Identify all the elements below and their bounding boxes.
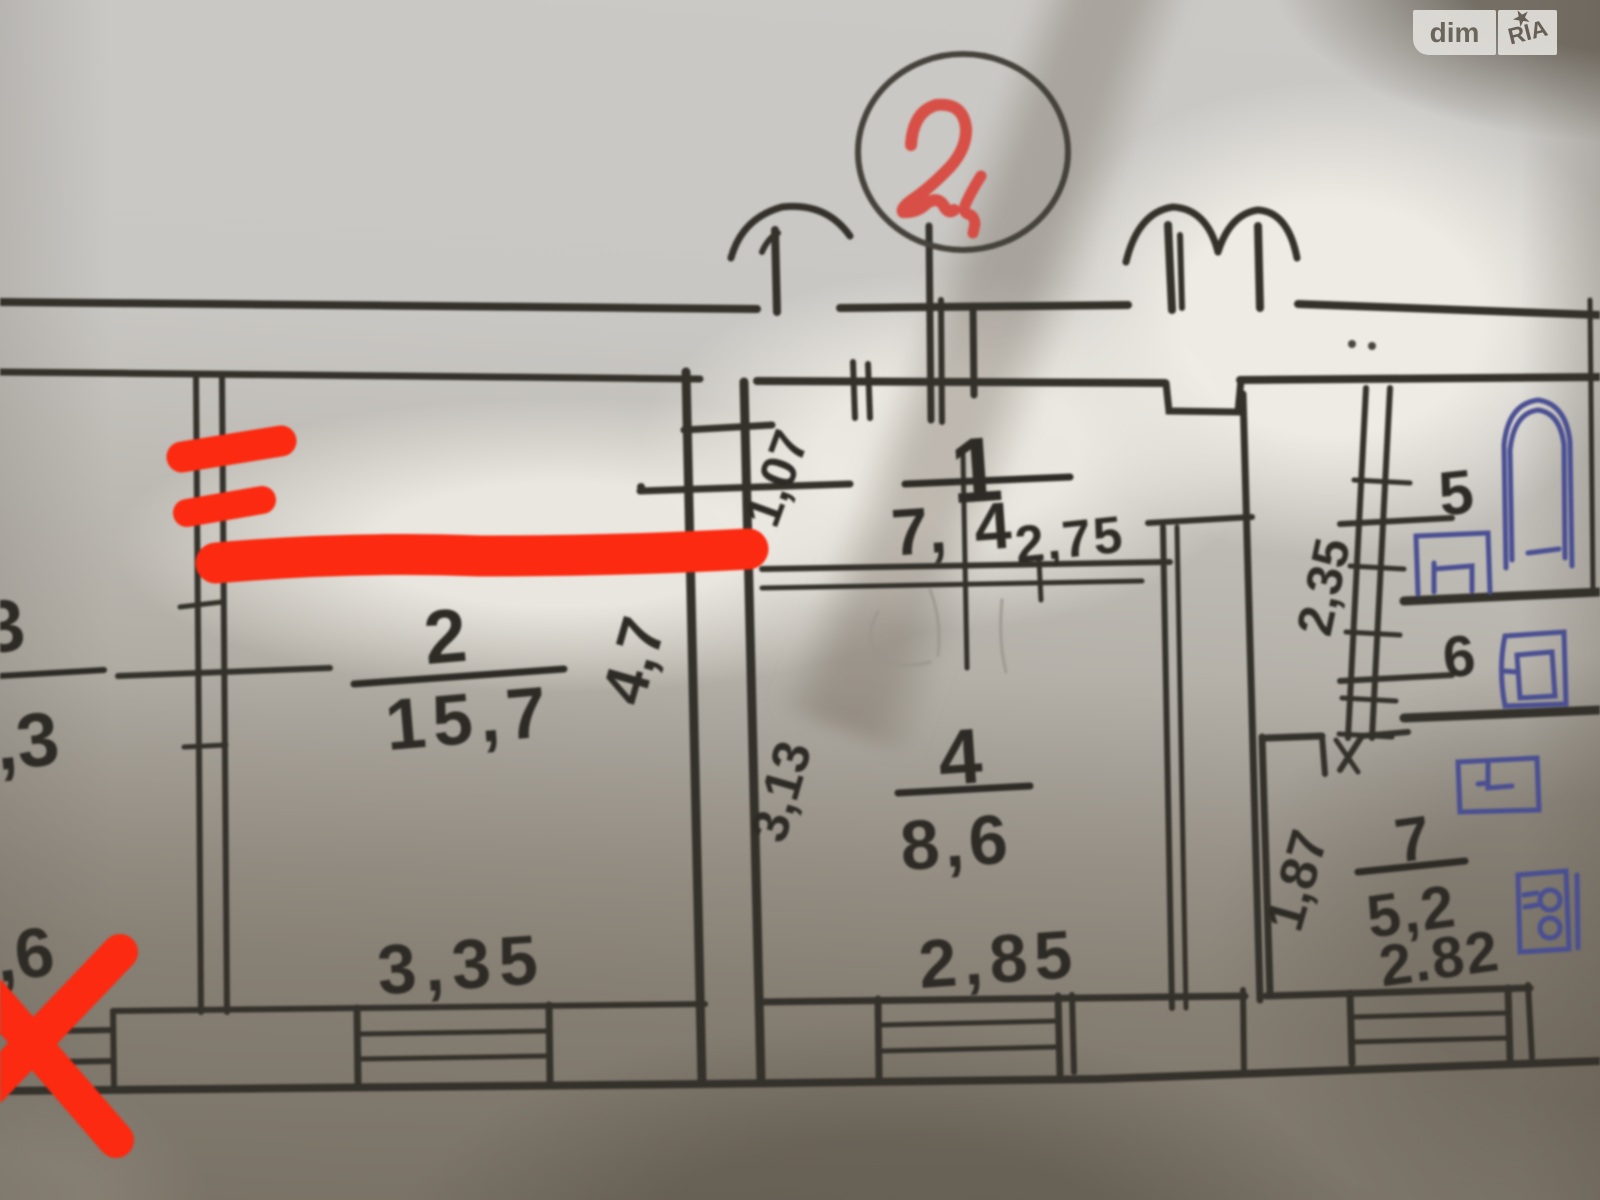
svg-text:15,7: 15,7 xyxy=(382,672,556,766)
svg-text:2,75: 2,75 xyxy=(1012,506,1127,575)
svg-text:4,3: 4,3 xyxy=(0,696,63,792)
svg-text:7,: 7, xyxy=(889,492,949,570)
svg-text:4,7: 4,7 xyxy=(589,610,679,712)
svg-text:3,35: 3,35 xyxy=(375,920,548,1010)
svg-text:3: 3 xyxy=(0,583,29,670)
svg-text:5: 5 xyxy=(1435,457,1477,529)
svg-text:4: 4 xyxy=(972,488,1014,564)
svg-text:2,85: 2,85 xyxy=(916,916,1081,1003)
svg-text:2,35: 2,35 xyxy=(1286,533,1361,640)
svg-text:2: 2 xyxy=(421,593,471,681)
svg-text:6: 6 xyxy=(1440,623,1479,691)
svg-text:8,6: 8,6 xyxy=(898,799,1015,885)
